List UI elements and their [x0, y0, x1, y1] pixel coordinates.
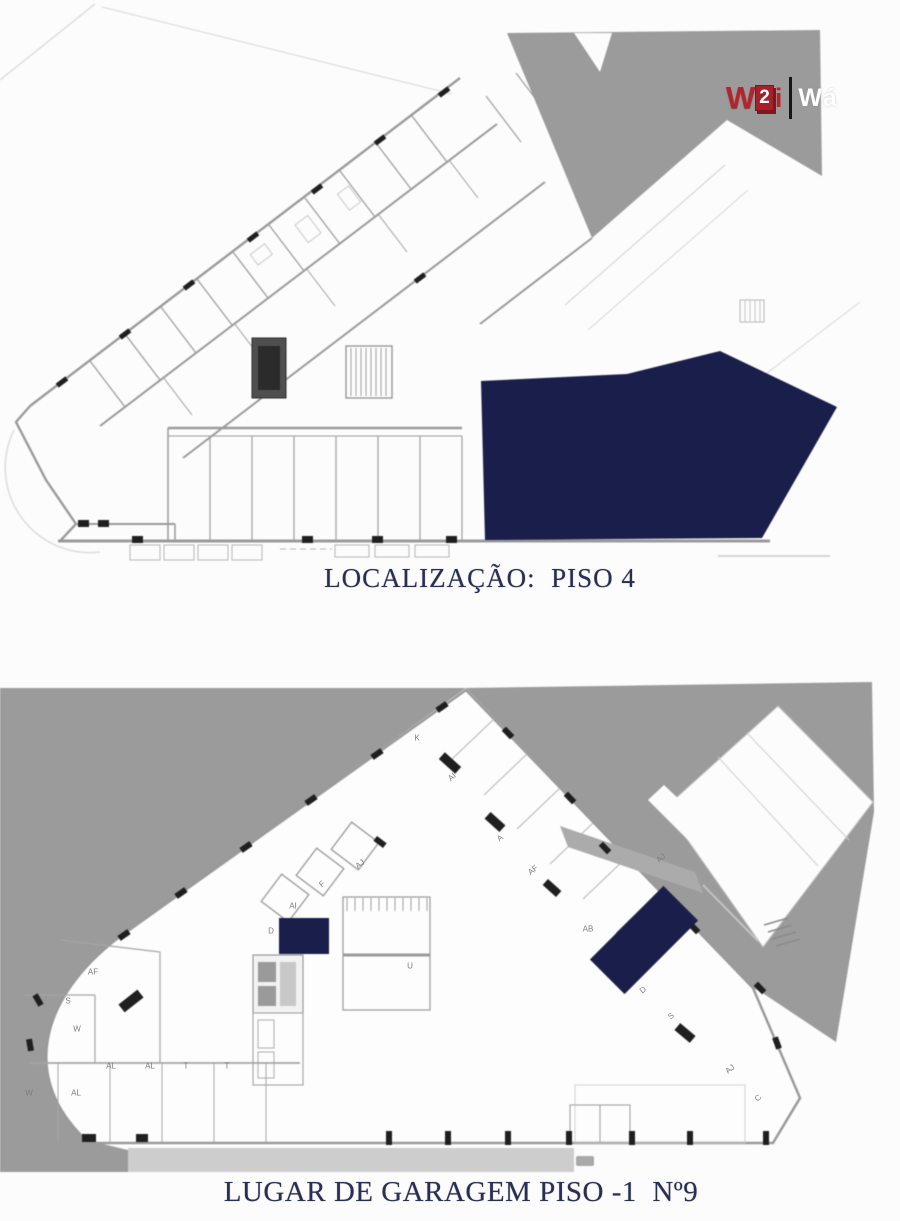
pillar-marks [56, 86, 457, 543]
adjacent-building-gray-area [507, 30, 822, 238]
logo-mark-i: i [775, 83, 783, 114]
gray-strip-bottom [128, 1148, 574, 1172]
brochure-page: W 2 i Wá LOCALIZAÇÃO: PISO 4 [0, 0, 900, 1221]
logo-mark-w: W [726, 80, 754, 116]
logo-wordmark: Wá [798, 84, 838, 113]
garage-floor-plan-drawing [0, 675, 900, 1175]
logo-divider [789, 77, 792, 119]
w2i-logo: W 2 i Wá [726, 72, 838, 124]
unit-highlight-piso4 [481, 351, 837, 540]
piso4-caption: LOCALIZAÇÃO: PISO 4 [30, 563, 900, 594]
garagem-caption: LUGAR DE GARAGEM PISO -1 Nº9 [11, 1176, 900, 1209]
gray-blob [576, 1156, 594, 1166]
staircase [346, 346, 392, 398]
logo-mark-2: 2 [755, 85, 774, 111]
terrace-boxes [130, 545, 449, 560]
elevator-core [252, 338, 286, 398]
parking-highlight-small [279, 918, 329, 954]
hatch-detail [740, 300, 764, 322]
